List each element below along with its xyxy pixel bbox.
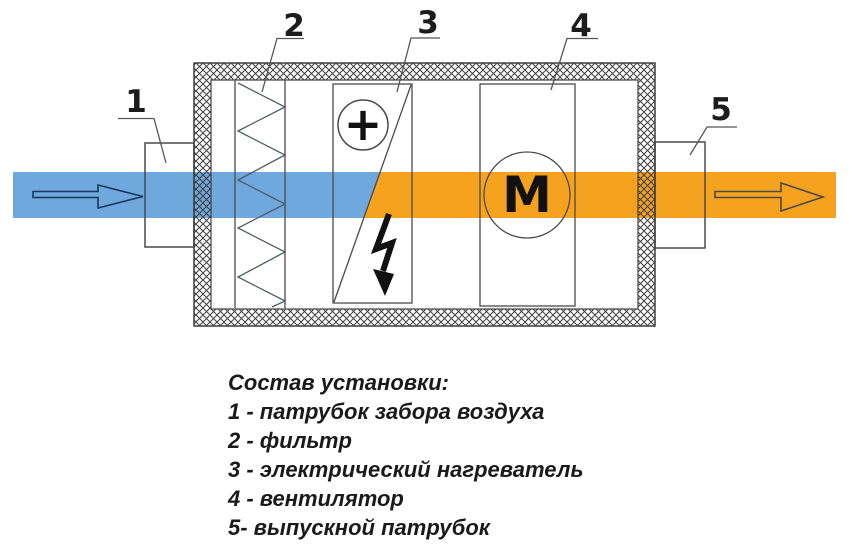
legend-item-5: 5- выпускной патрубок <box>228 513 584 542</box>
callout-1: 1 <box>118 84 166 163</box>
heated-air-band <box>364 172 836 218</box>
callout-5-number: 5 <box>710 92 732 128</box>
legend-heading: Состав установки: <box>228 368 584 397</box>
legend-item-2: 2 - фильтр <box>228 426 584 455</box>
callout-5: 5 <box>690 92 737 155</box>
callout-1-number: 1 <box>125 84 147 120</box>
legend-item-4: 4 - вентилятор <box>228 484 584 513</box>
callout-1-leader <box>118 119 166 164</box>
heater-plus-icon: + <box>344 97 383 151</box>
callout-5-leader <box>690 127 737 155</box>
callout-3-number: 3 <box>417 5 439 41</box>
lightning-bolt-icon <box>373 214 394 296</box>
diagram-canvas: + M 1 2 3 4 <box>0 0 855 548</box>
fan-motor-label: M <box>502 166 552 224</box>
legend-item-3: 3 - электрический нагреватель <box>228 455 584 484</box>
legend: Состав установки: 1 - патрубок забора во… <box>228 368 584 542</box>
legend-item-1: 1 - патрубок забора воздуха <box>228 397 584 426</box>
